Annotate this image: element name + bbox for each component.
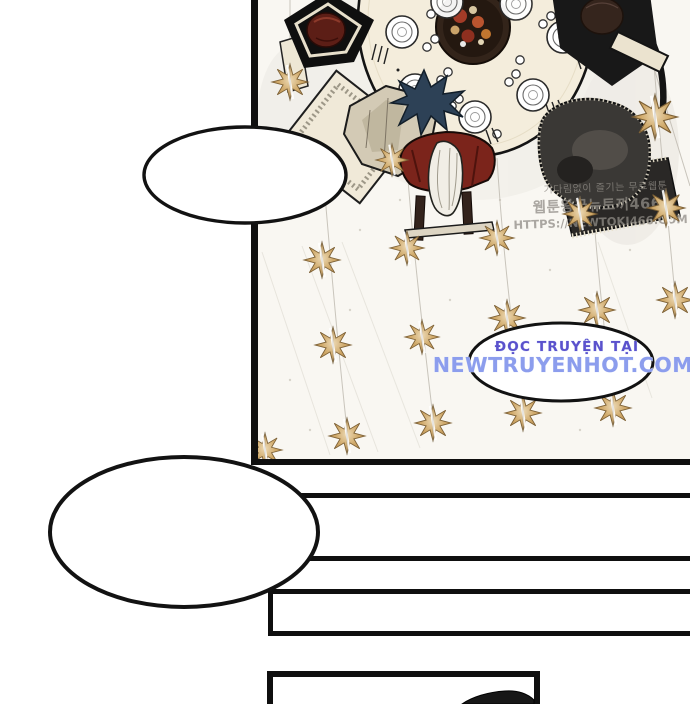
gutter-line-3 [268,589,690,594]
bottom-panel-border-top [267,671,540,677]
vn-watermark-line2: NEWTRUYENHOT.COM [433,353,690,377]
gutter-line-1 [255,493,690,498]
gutter-lines [255,493,690,636]
comic-page: 기다림없이 즐기는 무료웹툰 웹툰왕국뉴토끼466, HTTPS://NEWTO… [0,0,690,704]
panel-border-left [251,0,258,465]
gutter-line-2 [255,556,690,561]
comic-artwork: 기다림없이 즐기는 무료웹툰 웹툰왕국뉴토끼466, HTTPS://NEWTO… [0,0,690,704]
place-setting [517,79,549,111]
bottom-panel-border-right [534,671,540,704]
dark-hair [581,0,623,34]
speech-bubble-bottom-left [50,457,318,607]
place-setting [459,101,491,133]
bottom-panel-border-left [267,671,273,704]
speech-bubble-top-left [144,127,346,223]
bottom-panel [267,671,540,704]
bottom-panel-dark-shape [462,691,534,704]
place-setting [386,16,418,48]
gutter-line-4 [268,631,690,636]
main-panel: 기다림없이 즐기는 무료웹툰 웹툰왕국뉴토끼466, HTTPS://NEWTO… [248,0,690,468]
gutter-bracket-vertical [268,589,273,636]
white-hair [428,141,462,215]
panel-border-bottom [251,459,690,465]
